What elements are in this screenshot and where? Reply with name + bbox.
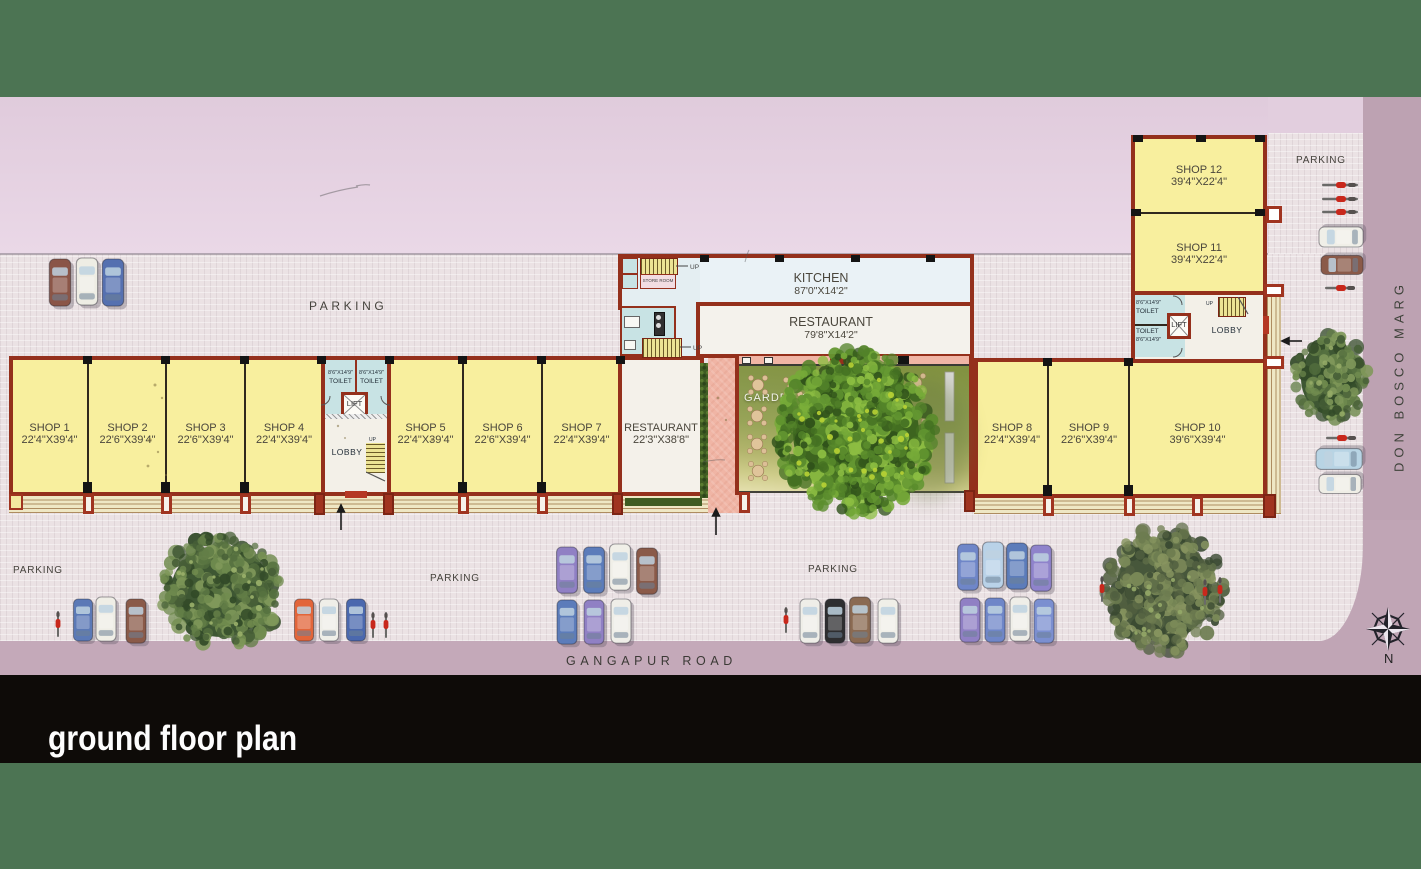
svg-text:UP: UP (693, 345, 702, 352)
svg-text:UP: UP (690, 264, 699, 271)
